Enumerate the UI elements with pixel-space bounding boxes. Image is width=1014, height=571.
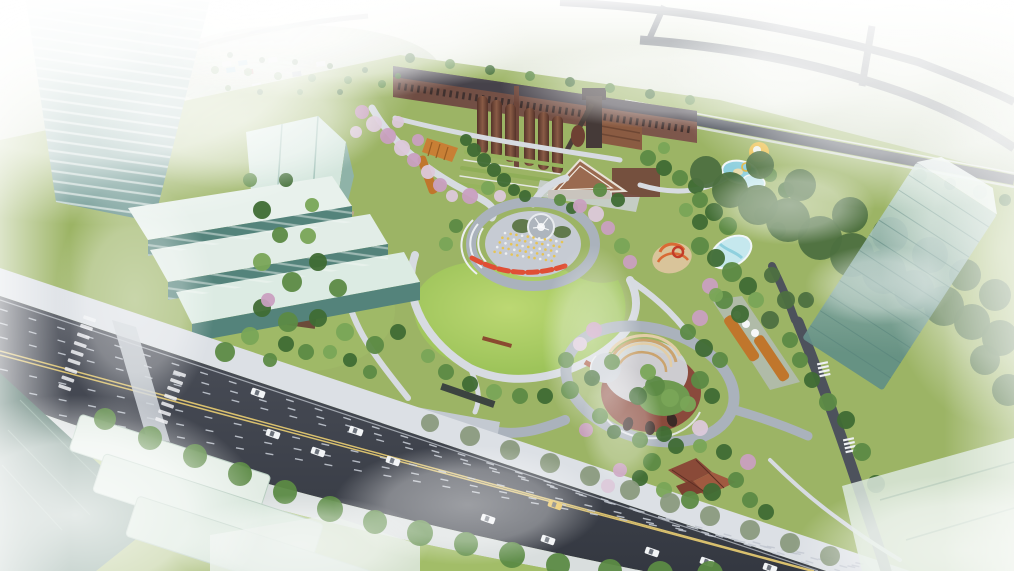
tree [309,309,327,327]
plaza-dot [502,247,505,250]
silo [524,108,535,166]
tree [804,372,820,388]
tree [640,150,656,166]
tree [512,388,528,404]
plaza-dot [524,250,527,253]
tree [692,214,708,230]
plaza-dot [527,235,530,238]
plaza-dot [513,238,516,241]
tree [740,520,760,540]
plaza-dot [547,254,550,257]
brick-flank-wall [612,168,660,197]
tree [446,190,458,202]
tree [709,288,723,302]
plaza-dot [499,241,502,244]
tree [740,454,756,470]
haze-wisp [582,365,662,485]
tree [329,279,347,297]
tree [679,203,693,217]
plaza-dot [556,250,559,253]
plaza-dot [530,251,533,254]
plaza-dot [545,259,548,262]
tree [439,237,453,251]
plaza-dot [530,241,533,244]
tree [764,267,780,283]
tree [336,323,354,341]
haze-cloud [90,50,390,190]
tree [656,160,672,176]
tree [278,312,298,332]
planting-bed [553,226,571,238]
tree [449,219,463,233]
plaza-dot [558,245,561,248]
plaza-dot [535,242,538,245]
tree [661,389,679,407]
tree [722,262,742,282]
tree [777,291,795,309]
tree [272,227,288,243]
tree [660,493,680,513]
plaza-dot [521,234,524,237]
tree [487,163,501,177]
plaza-dot [533,257,536,260]
plaza-dot [538,237,541,240]
tree [477,153,491,167]
tree [323,345,337,359]
tree [390,324,406,340]
tree [300,228,316,244]
tree [278,336,294,352]
plaza-dot [553,255,556,258]
plaza-dot [532,236,535,239]
tree [748,292,764,308]
tree [712,352,728,368]
tree [703,483,721,501]
plaza-dot [501,236,504,239]
tree [519,190,531,202]
plaza-dot [528,256,531,259]
tree [819,393,837,411]
tree [263,353,277,367]
tree [433,178,447,192]
tree [658,142,670,154]
haze-wisp [55,180,215,420]
tree [668,438,684,454]
plaza-dot [519,249,522,252]
tree [486,384,502,400]
tree [462,376,478,392]
tree [614,238,630,254]
plaza-dot [527,246,530,249]
plaza-dot [524,240,527,243]
plaza-dot [509,233,512,236]
plaza-dot [547,244,550,247]
tree [700,506,720,526]
tree [761,311,779,329]
tree [716,444,732,460]
plaza-dot [518,239,521,242]
plaza-dot [542,253,545,256]
tree [742,492,758,508]
plaza-dot [493,251,496,254]
tree [691,237,709,255]
rendering-svg [0,0,1014,571]
plaza-dot [538,247,541,250]
tree [837,411,855,429]
plaza-dot [539,258,542,261]
tree [601,221,615,235]
tree [508,184,520,196]
plaza-dot [504,242,507,245]
park-masterplan-aerial-rendering [0,0,1014,571]
plaza-dot [510,253,513,256]
plaza-dot [544,238,547,241]
tree [462,188,478,204]
plaza-dot [522,255,525,258]
tree [611,193,625,207]
tree [261,293,275,307]
tree [460,426,480,446]
silo [505,104,516,162]
tree [253,253,271,271]
tree [407,153,421,167]
plaza-dot [516,244,519,247]
plaza-dot [541,243,544,246]
tree [672,170,688,186]
tree [438,364,454,380]
tree [691,371,709,389]
plaza-dot [552,245,555,248]
tree [623,255,637,269]
tree [497,173,511,187]
tree [421,414,439,432]
tree [695,339,713,357]
tree [704,388,720,404]
plaza-dot [499,251,502,254]
tree [792,352,808,368]
plaza-dot [544,248,547,251]
plaza-dot [513,249,516,252]
tree [693,439,707,453]
plaza-dot [505,252,508,255]
plaza-dot [507,237,510,240]
plaza-dot [555,240,558,243]
tree [282,272,302,292]
tree [680,396,696,412]
tree [681,491,699,509]
tree [298,344,314,360]
tree [412,134,424,146]
furnace-vessel [571,125,585,147]
plaza-dot [550,249,553,252]
tree [363,365,377,379]
tree [343,353,357,367]
tree [554,194,566,206]
tree [728,472,744,488]
tree [692,310,708,326]
tree [588,206,604,222]
tree [853,443,871,461]
tree [421,349,435,363]
tree [758,504,774,520]
tree [394,140,410,156]
silo [491,100,502,158]
tree [309,253,327,271]
plaza-dot [550,260,553,263]
plaza-dot [507,248,510,251]
plaza-dot [536,252,539,255]
haze-cloud [805,245,955,325]
umbrella [751,329,759,337]
plaza-dot [510,243,513,246]
plaza-dot [504,232,507,235]
tree [680,324,696,340]
tree [692,420,708,436]
plaza-dot [521,245,524,248]
tree [593,183,607,197]
tree [707,249,725,267]
tree [215,342,235,362]
plaza-dot [496,246,499,249]
plaza-dot [561,241,564,244]
tree [494,190,506,202]
tree [253,201,271,219]
tree [481,181,495,195]
tree [241,327,259,345]
plaza-dot [515,234,518,237]
tree [366,336,384,354]
tree [782,332,798,348]
tree [573,199,587,213]
tree [460,134,472,146]
plaza-dot [549,239,552,242]
haze-cloud [705,165,875,245]
tree [421,165,435,179]
tree [731,305,749,323]
plaza-dot [516,254,519,257]
tree [305,198,319,212]
plaza-dot [533,247,536,250]
